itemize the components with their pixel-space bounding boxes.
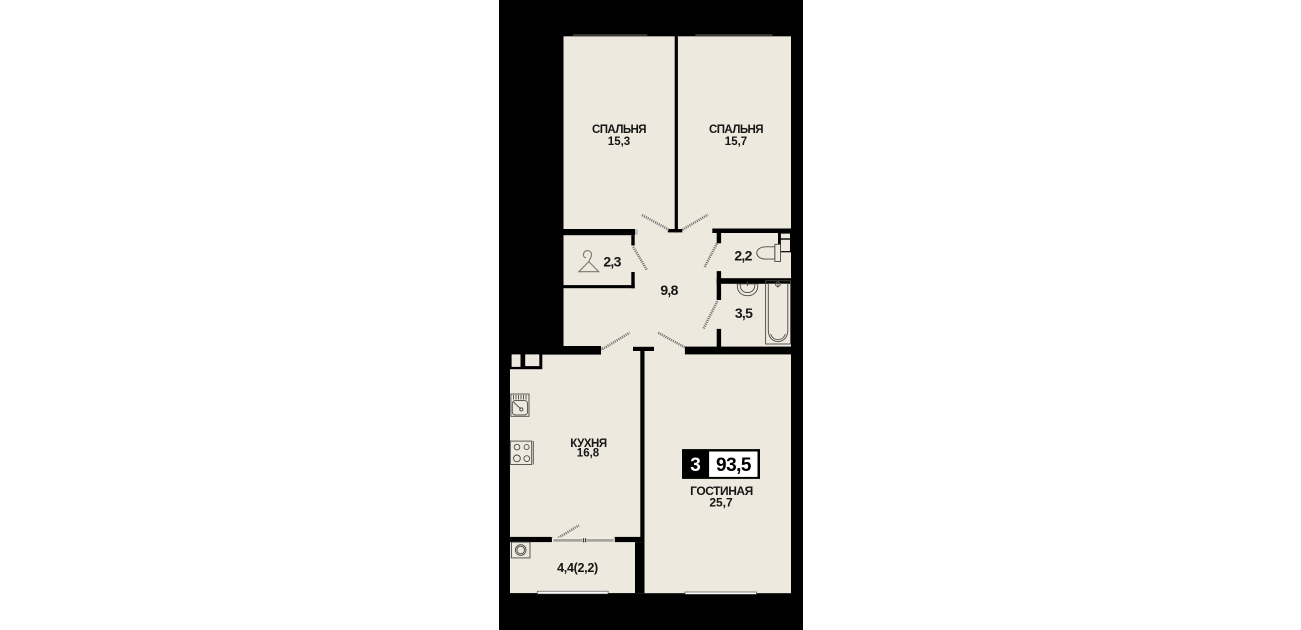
svg-text:3,5: 3,5: [735, 305, 753, 321]
svg-text:25,7: 25,7: [709, 496, 733, 510]
svg-text:9,8: 9,8: [660, 282, 678, 298]
svg-text:2,3: 2,3: [603, 254, 621, 270]
svg-text:4,4(2,2): 4,4(2,2): [557, 561, 598, 575]
svg-text:СПАЛЬНЯ: СПАЛЬНЯ: [709, 124, 763, 136]
svg-text:93,5: 93,5: [716, 455, 752, 476]
svg-text:3: 3: [690, 455, 701, 476]
svg-text:15,3: 15,3: [608, 136, 630, 148]
svg-text:СПАЛЬНЯ: СПАЛЬНЯ: [592, 124, 646, 136]
svg-text:2,2: 2,2: [734, 247, 752, 263]
svg-text:15,7: 15,7: [725, 136, 747, 148]
svg-text:16,8: 16,8: [577, 448, 600, 460]
